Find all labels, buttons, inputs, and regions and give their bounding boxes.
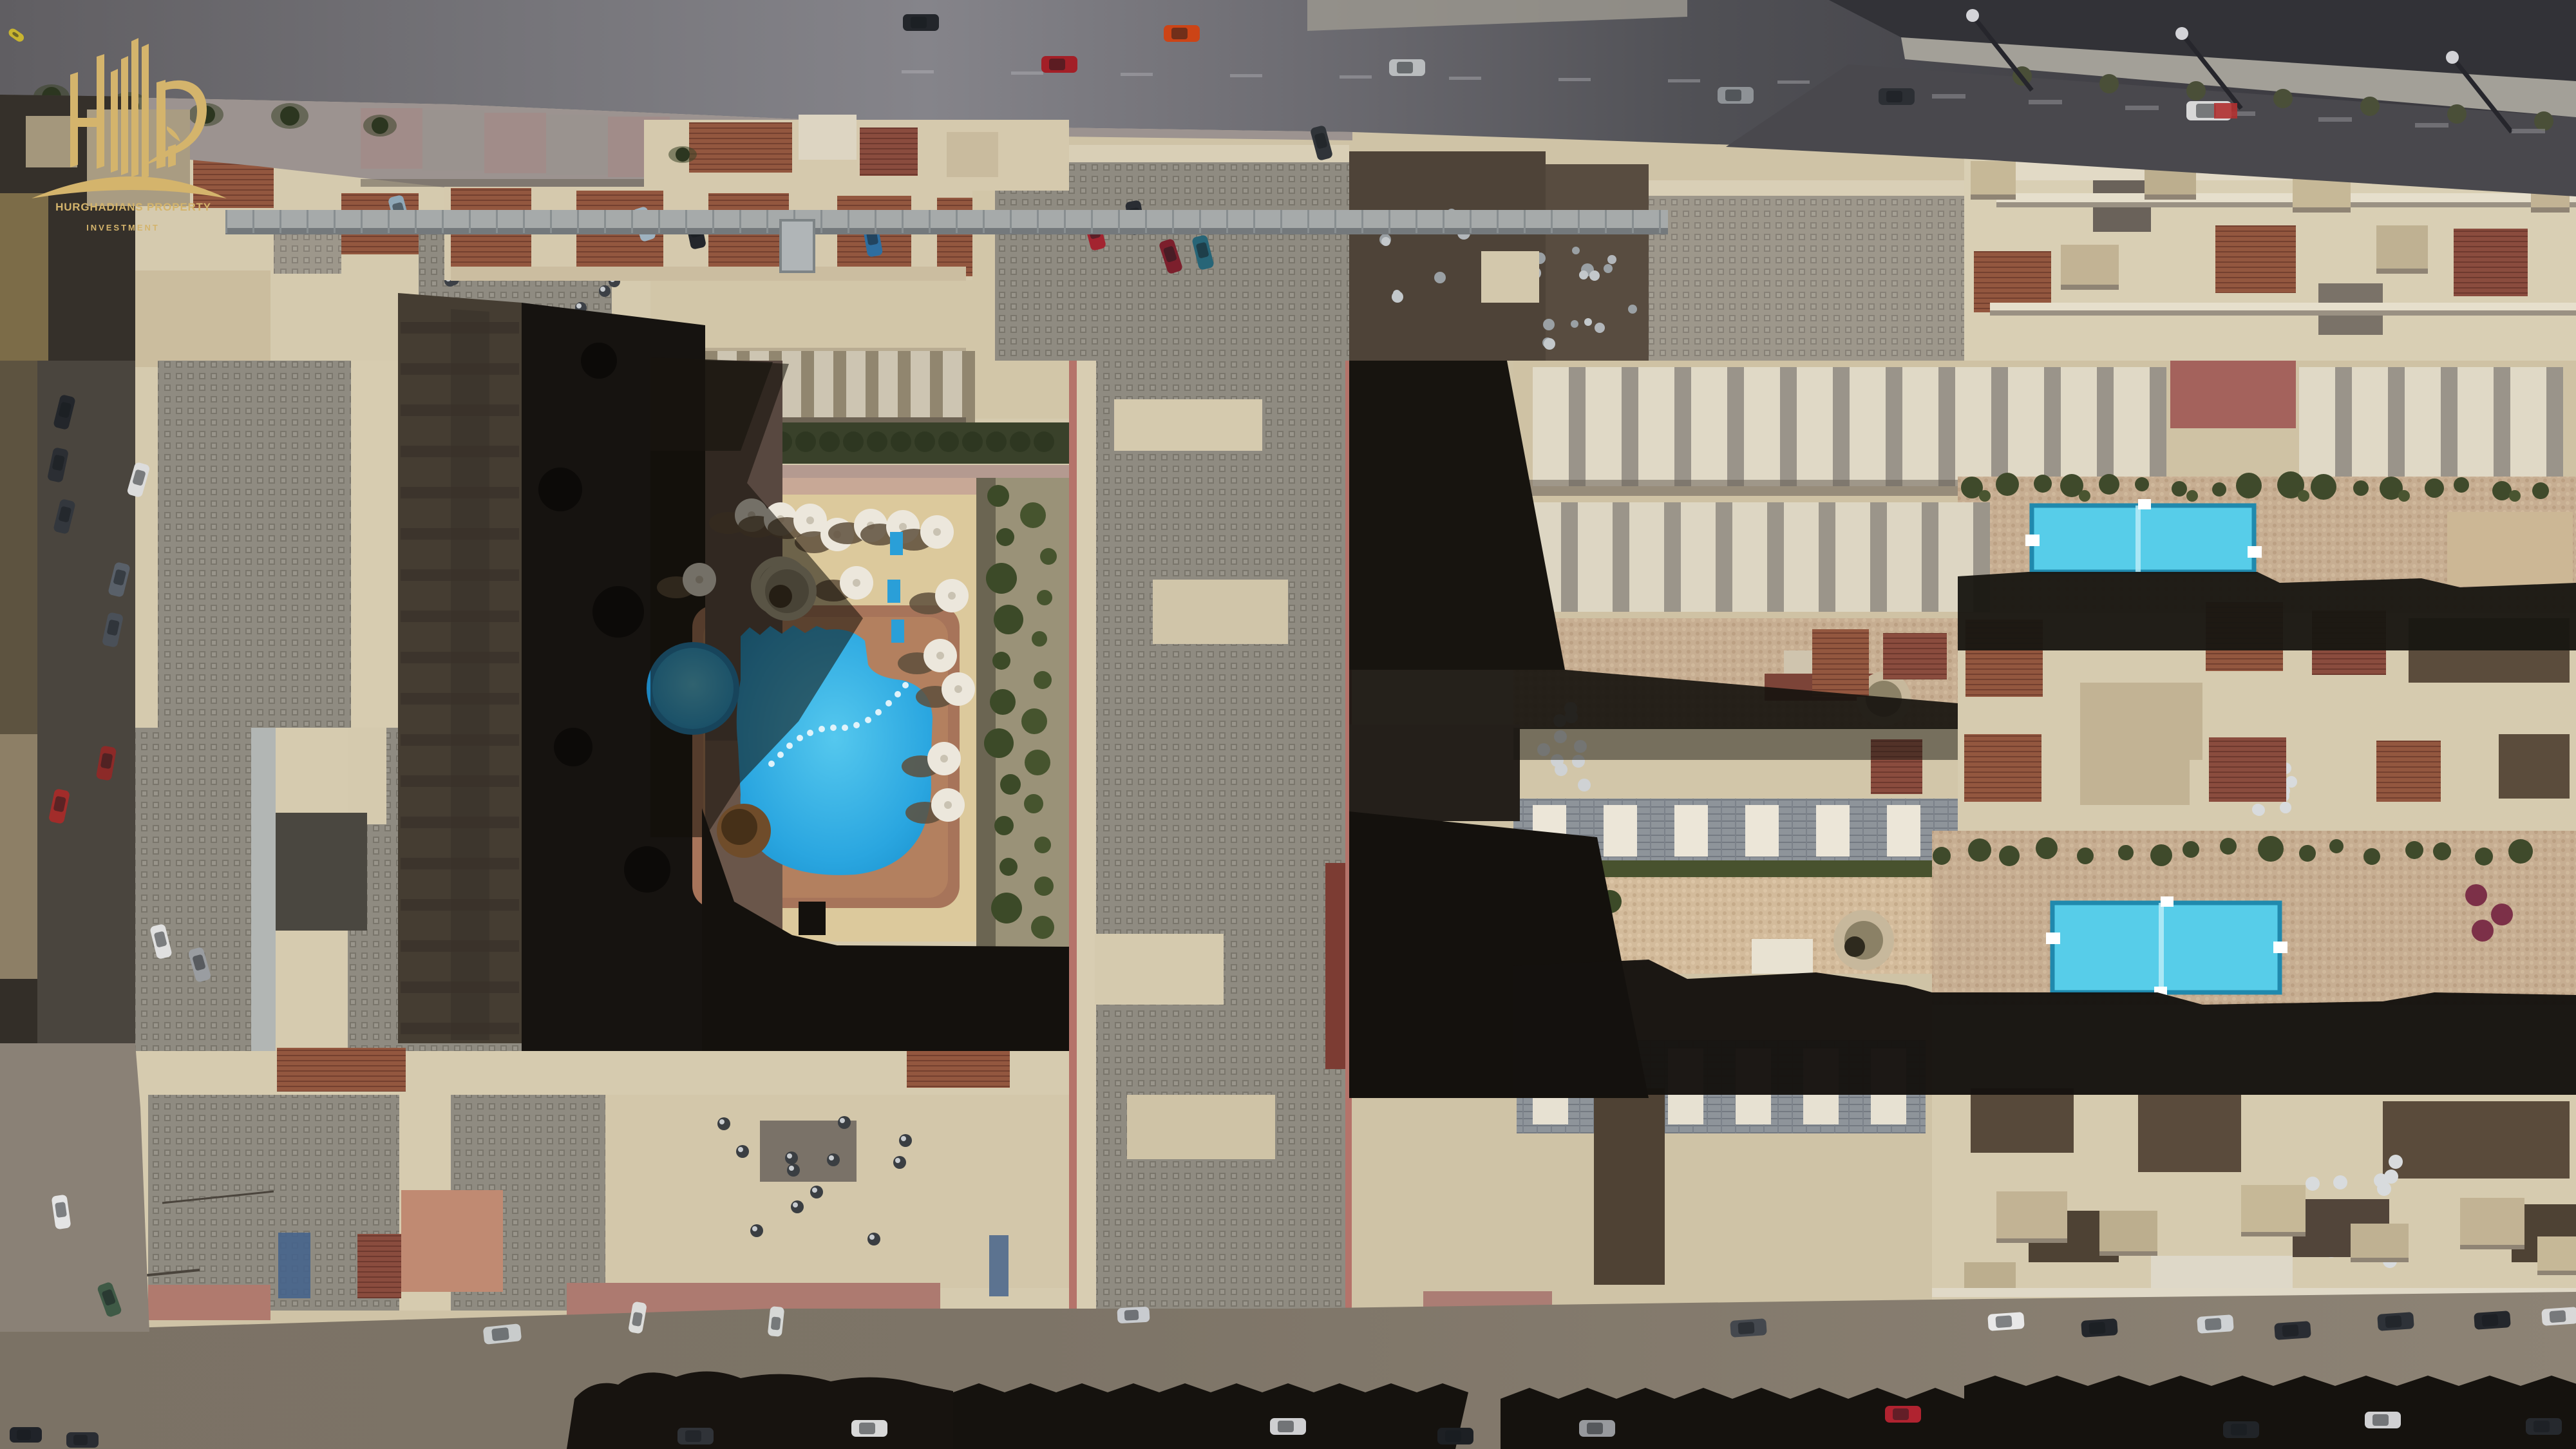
svg-text:HURGHADIANS PROPERTY: HURGHADIANS PROPERTY — [55, 201, 211, 213]
svg-text:INVESTMENT: INVESTMENT — [86, 223, 160, 232]
